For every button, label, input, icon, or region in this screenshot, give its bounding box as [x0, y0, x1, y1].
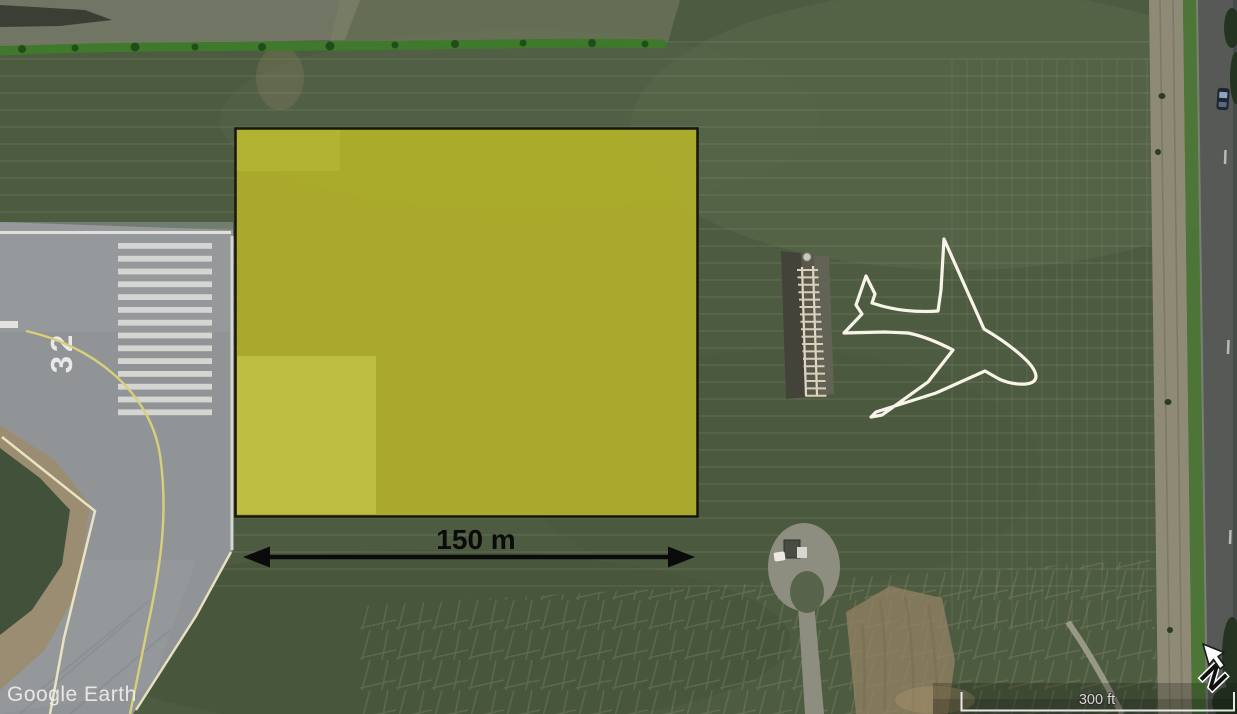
google-earth-watermark: Google Earth: [7, 683, 137, 706]
scale-bar: 300 ft: [933, 683, 1237, 714]
car: [1216, 88, 1230, 111]
measurement-label: 150 m: [436, 524, 515, 555]
runway-edge-marking: [231, 236, 234, 550]
mow-lines-texture: [950, 60, 1165, 630]
localizer-antenna-array: [781, 251, 834, 399]
dirt-patch: [256, 46, 304, 110]
scale-bar-label: 300 ft: [1079, 692, 1115, 708]
highlight-inner-patch: [237, 356, 376, 514]
google-earth-viewport[interactable]: 32: [0, 0, 1237, 714]
highlight-inner-patch: [236, 129, 340, 171]
plowed-field: [330, 0, 680, 42]
runway-edge-marking: [0, 231, 231, 234]
runway-marking: [0, 321, 18, 328]
shed-roof: [797, 547, 807, 558]
parked-vehicle: [773, 551, 785, 561]
highlight-polygon[interactable]: [236, 129, 698, 517]
